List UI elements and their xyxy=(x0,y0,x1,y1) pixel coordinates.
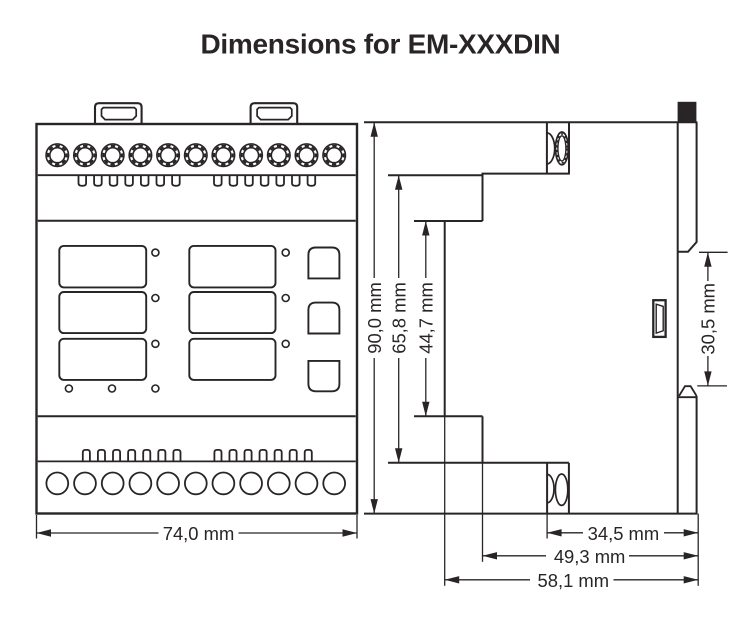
svg-text:30,5 mm: 30,5 mm xyxy=(698,283,719,355)
svg-text:58,1 mm: 58,1 mm xyxy=(538,570,610,591)
svg-text:Dimensions for EM-XXXDIN: Dimensions for EM-XXXDIN xyxy=(201,28,561,59)
svg-text:44,7 mm: 44,7 mm xyxy=(415,282,436,354)
svg-text:49,3 mm: 49,3 mm xyxy=(554,546,626,567)
svg-text:34,5 mm: 34,5 mm xyxy=(588,523,660,544)
svg-text:74,0 mm: 74,0 mm xyxy=(163,523,235,544)
svg-text:65,8 mm: 65,8 mm xyxy=(388,282,409,354)
svg-text:90,0 mm: 90,0 mm xyxy=(364,282,385,354)
